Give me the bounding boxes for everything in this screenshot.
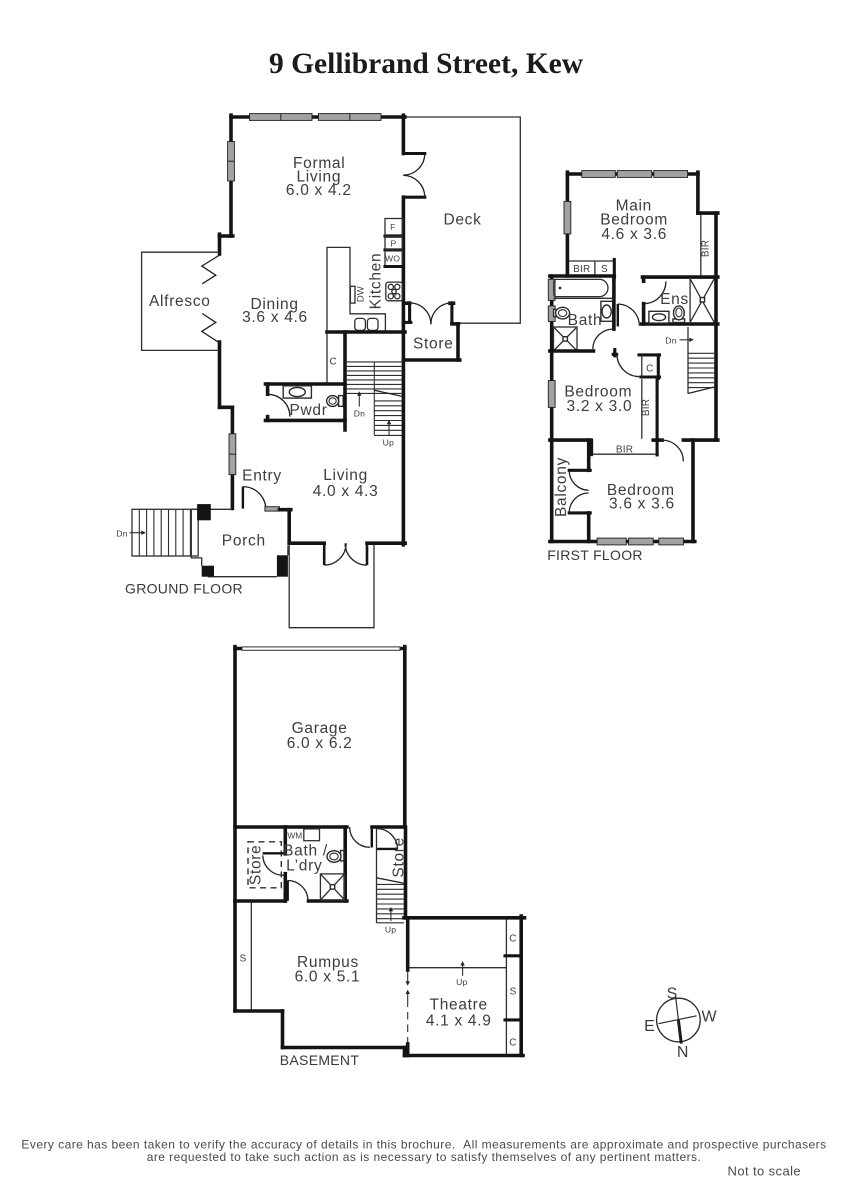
svg-text:BASEMENT: BASEMENT — [280, 1052, 360, 1068]
svg-text:S: S — [667, 986, 678, 1003]
svg-text:F: F — [390, 222, 395, 232]
svg-text:9 Gellibrand Street, Kew: 9 Gellibrand Street, Kew — [269, 48, 584, 80]
svg-text:Not to scale: Not to scale — [728, 1164, 801, 1179]
svg-text:W: W — [701, 1009, 717, 1026]
svg-text:E: E — [644, 1018, 655, 1035]
svg-text:Store: Store — [391, 837, 408, 878]
svg-text:GROUND FLOOR: GROUND FLOOR — [125, 581, 243, 597]
svg-text:Kitchen: Kitchen — [367, 253, 384, 310]
svg-text:BIR: BIR — [616, 445, 633, 456]
svg-text:S: S — [510, 987, 517, 998]
svg-text:Alfresco: Alfresco — [149, 293, 211, 310]
svg-text:N: N — [677, 1044, 689, 1061]
svg-text:4.0 x 4.3: 4.0 x 4.3 — [313, 483, 379, 500]
svg-text:4.1 x 4.9: 4.1 x 4.9 — [426, 1013, 492, 1030]
svg-text:DW: DW — [356, 286, 367, 302]
svg-text:6.0 x 4.2: 6.0 x 4.2 — [286, 182, 352, 199]
svg-text:Dn: Dn — [354, 408, 365, 418]
svg-text:WM: WM — [287, 830, 302, 840]
svg-text:Up: Up — [456, 977, 467, 987]
svg-text:L’dry: L’dry — [286, 858, 322, 875]
svg-text:FIRST FLOOR: FIRST FLOOR — [547, 547, 643, 563]
svg-text:Store: Store — [413, 336, 454, 353]
svg-text:Deck: Deck — [443, 211, 481, 228]
svg-text:Porch: Porch — [222, 533, 266, 550]
svg-text:Store: Store — [248, 845, 265, 886]
svg-text:Up: Up — [385, 924, 396, 934]
svg-text:3.6 x 3.6: 3.6 x 3.6 — [609, 496, 675, 513]
svg-text:3.6 x 4.6: 3.6 x 4.6 — [242, 309, 308, 326]
svg-text:6.0 x 6.2: 6.0 x 6.2 — [287, 735, 353, 752]
svg-text:P: P — [391, 239, 397, 249]
svg-text:Up: Up — [383, 437, 394, 447]
svg-text:6.0 x 5.1: 6.0 x 5.1 — [295, 968, 361, 985]
svg-text:S: S — [240, 954, 247, 965]
svg-text:Pwdr: Pwdr — [289, 402, 327, 419]
svg-text:Ens: Ens — [660, 291, 689, 308]
svg-text:C: C — [509, 934, 516, 945]
svg-text:4.6 x 3.6: 4.6 x 3.6 — [601, 226, 667, 243]
svg-text:Balcony: Balcony — [553, 457, 570, 517]
svg-text:BIR: BIR — [641, 399, 652, 416]
svg-text:Theatre: Theatre — [430, 996, 488, 1013]
svg-text:3.2 x 3.0: 3.2 x 3.0 — [567, 398, 633, 415]
svg-text:BIR: BIR — [573, 264, 590, 275]
svg-text:S: S — [601, 264, 608, 275]
svg-text:C: C — [509, 1038, 516, 1049]
svg-text:WO: WO — [385, 254, 400, 264]
svg-text:Dn: Dn — [665, 336, 676, 346]
svg-text:C: C — [646, 364, 653, 375]
svg-text:Living: Living — [323, 467, 368, 484]
svg-text:Dn: Dn — [116, 528, 127, 538]
svg-text:C: C — [329, 356, 336, 367]
svg-text:BIR: BIR — [700, 240, 711, 257]
svg-text:Entry: Entry — [242, 467, 282, 484]
svg-text:are requested to take such act: are requested to take such action as is … — [147, 1150, 702, 1164]
